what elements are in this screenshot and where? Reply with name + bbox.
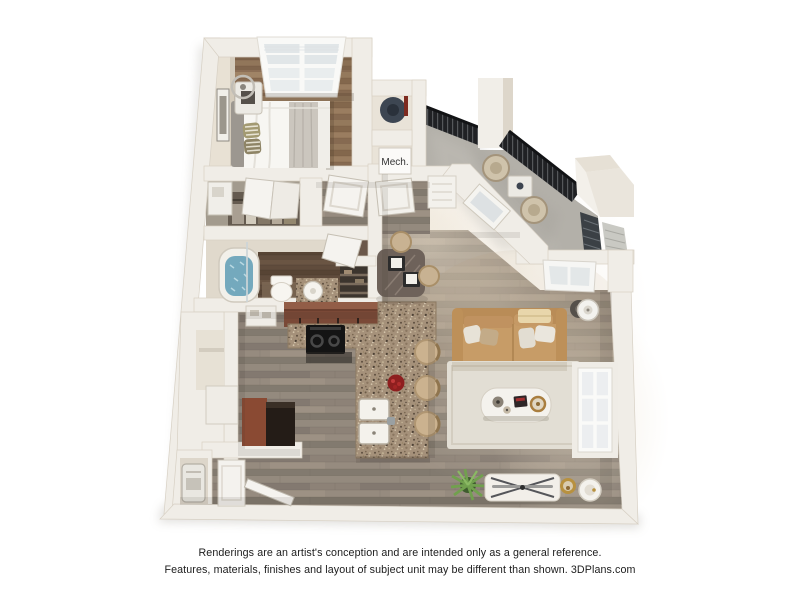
svg-text:Mech.: Mech. (381, 157, 408, 168)
